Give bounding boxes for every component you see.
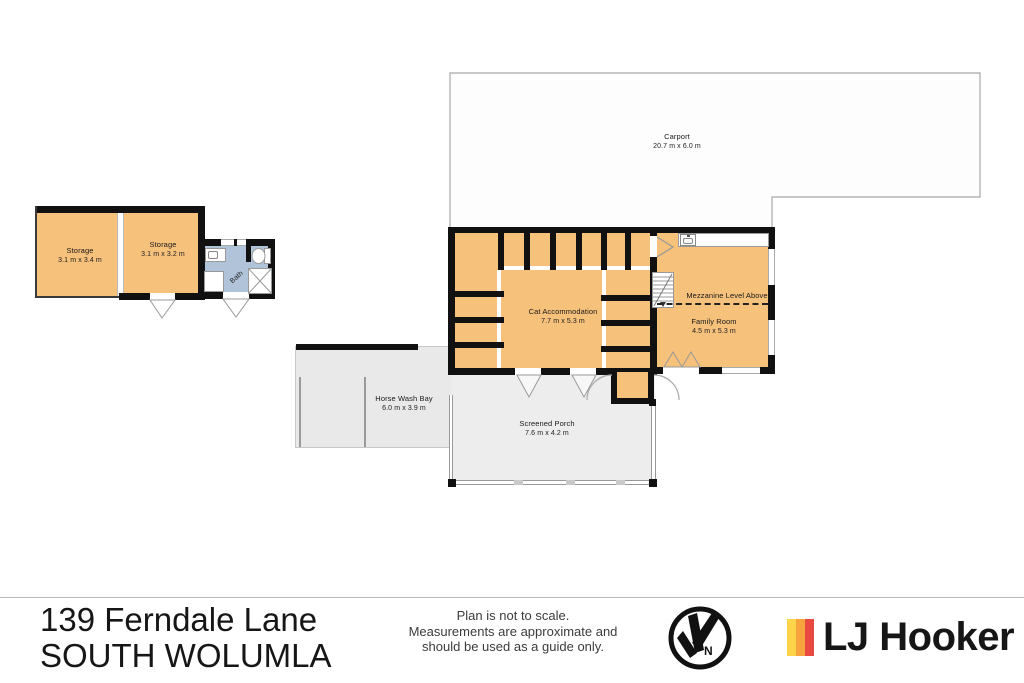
screen-post bbox=[616, 480, 625, 485]
address-line2: SOUTH WOLUMLA bbox=[40, 638, 332, 674]
screened-porch-name: Screened Porch bbox=[487, 419, 607, 429]
screen-wall bbox=[651, 404, 656, 481]
pen-partition bbox=[601, 233, 607, 270]
screen-post bbox=[566, 480, 575, 485]
disclaimer-line3: should be used as a guide only. bbox=[362, 639, 664, 655]
pen-partition bbox=[455, 342, 504, 348]
brand-logo: LJ Hooker bbox=[787, 607, 1014, 667]
corner-post bbox=[649, 479, 657, 487]
window-opening bbox=[722, 367, 760, 374]
compass-north-letter: N bbox=[704, 644, 713, 658]
horse-wash-bay-dims: 6.0 m x 3.9 m bbox=[344, 404, 464, 413]
family-room-dims: 4.5 m x 5.3 m bbox=[653, 327, 775, 336]
screened-porch-label: Screened Porch 7.6 m x 4.2 m bbox=[487, 419, 607, 438]
cat-accommodation-label: Cat Accommodation 7.7 m x 5.3 m bbox=[493, 307, 633, 326]
address-line1: 139 Ferndale Lane bbox=[40, 602, 317, 638]
compass-logo-icon: N bbox=[667, 605, 733, 671]
carport-outline bbox=[448, 71, 984, 233]
horse-wash-bay-name: Horse Wash Bay bbox=[344, 394, 464, 404]
carport-dims: 20.7 m x 6.0 m bbox=[617, 142, 737, 151]
floorplan-page: Carport 20.7 m x 6.0 m Horse Wash Bay 6.… bbox=[0, 0, 1024, 683]
family-room-label: Family Room 4.5 m x 5.3 m bbox=[653, 317, 775, 336]
brand-stripe-yellow bbox=[787, 619, 796, 656]
brand-stripe-red bbox=[805, 619, 814, 656]
laundry-fixture bbox=[204, 271, 224, 292]
door-swing bbox=[146, 299, 180, 321]
door-swing bbox=[583, 371, 683, 403]
carport-label: Carport 20.7 m x 6.0 m bbox=[617, 132, 737, 151]
mezzanine-note: Mezzanine Level Above bbox=[657, 291, 797, 301]
screened-porch-dims: 7.6 m x 4.2 m bbox=[487, 429, 607, 438]
pen-partition bbox=[524, 233, 530, 270]
door-swing bbox=[652, 234, 678, 260]
horse-wash-bay-label: Horse Wash Bay 6.0 m x 3.9 m bbox=[344, 394, 464, 413]
double-door-swing bbox=[660, 350, 704, 369]
pen-partition bbox=[455, 291, 504, 297]
shower-icon bbox=[248, 268, 272, 294]
disclaimer-line1: Plan is not to scale. bbox=[362, 608, 664, 624]
wall-thin bbox=[35, 296, 119, 298]
brand-name: LJ Hooker bbox=[823, 615, 1014, 660]
pen-partition bbox=[550, 233, 556, 270]
footer-divider bbox=[0, 597, 1024, 598]
toilet-icon bbox=[250, 246, 272, 266]
disclaimer-line2: Measurements are approximate and bbox=[362, 624, 664, 640]
corner-post bbox=[448, 479, 456, 487]
sink-icon bbox=[208, 251, 218, 259]
cat-accommodation-name: Cat Accommodation bbox=[493, 307, 633, 317]
wall bbox=[448, 227, 455, 375]
faucet-icon bbox=[687, 235, 690, 237]
post bbox=[299, 377, 301, 447]
screen-wall bbox=[449, 395, 453, 481]
carport-name: Carport bbox=[617, 132, 737, 142]
sink-basin bbox=[683, 238, 693, 244]
window-opening bbox=[768, 249, 775, 285]
pen-partition bbox=[601, 295, 653, 301]
pen-partition bbox=[625, 233, 631, 270]
brand-stripe-orange bbox=[796, 619, 805, 656]
pen-partition bbox=[601, 346, 653, 352]
door-swing bbox=[219, 298, 253, 320]
wall bbox=[296, 344, 418, 350]
wall bbox=[35, 206, 205, 213]
window-opening bbox=[221, 239, 234, 246]
pen-partition bbox=[576, 233, 582, 270]
cat-accommodation-dims: 7.7 m x 5.3 m bbox=[493, 317, 633, 326]
family-room-name: Family Room bbox=[653, 317, 775, 327]
mezzanine-dashed-line bbox=[657, 303, 768, 305]
pen-partition bbox=[498, 233, 504, 270]
screen-post bbox=[514, 480, 523, 485]
